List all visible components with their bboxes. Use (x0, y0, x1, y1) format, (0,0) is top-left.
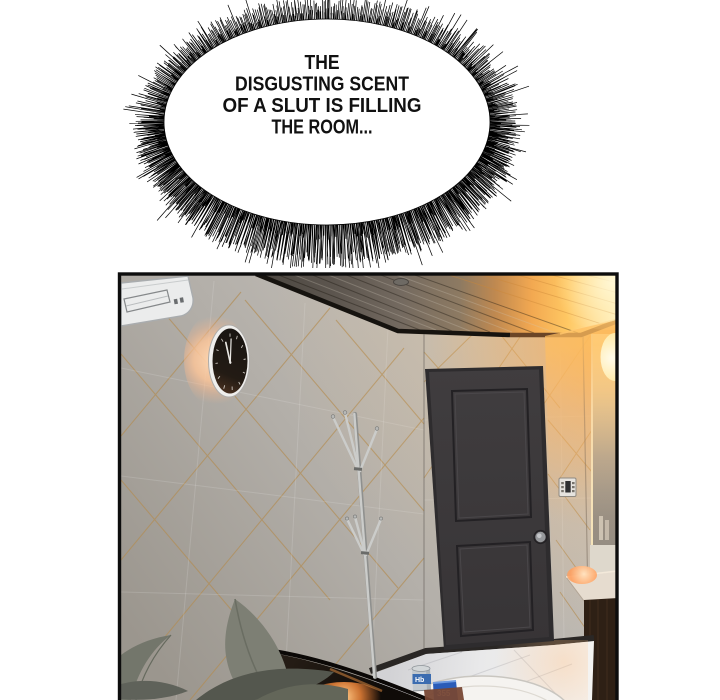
svg-text:Hb: Hb (415, 677, 424, 684)
svg-text:THE: THE (305, 52, 340, 74)
svg-text:DISGUSTING SCENT: DISGUSTING SCENT (235, 74, 409, 96)
svg-text:OF A SLUT IS FILLING: OF A SLUT IS FILLING (223, 95, 422, 117)
svg-text:THE ROOM...: THE ROOM... (272, 117, 373, 139)
